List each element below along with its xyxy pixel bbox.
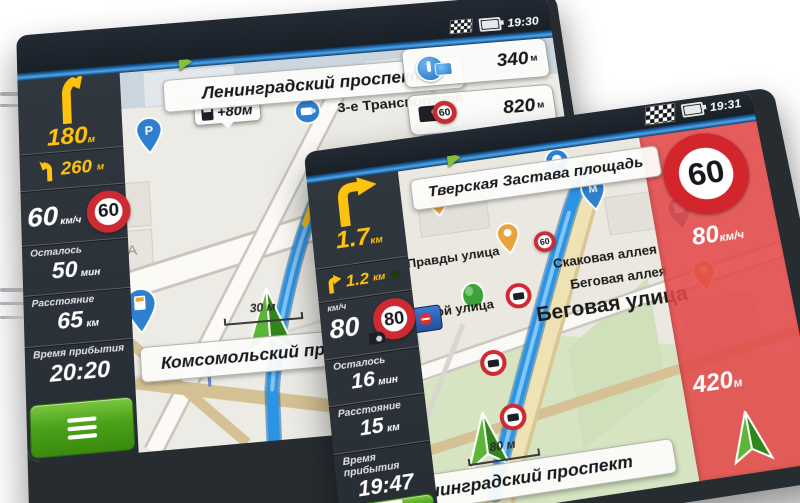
speed-unit-label: км/ч [327,301,347,313]
arrival-time-panel[interactable]: Время прибытия 20:20 [25,338,136,402]
clock: 19:30 [506,13,539,29]
speed-limit-sign: 60 [86,189,132,235]
speed-camera-icon [368,331,385,345]
maneuver-arrow-icon [46,71,92,126]
turn-right-arrow-icon [329,172,381,228]
current-speed-warning: 80км/ч [689,217,746,251]
camera-road-sign [506,284,531,308]
camera-badge-icon [434,62,453,76]
svg-text:P: P [144,124,153,138]
no-entry-lane-icon [419,312,432,325]
hamburger-icon [67,416,96,423]
battery-icon [680,102,704,118]
camera-road-sign [500,404,525,430]
current-speed: 80 [328,311,361,345]
route-finish-flag-icon [645,103,675,126]
navigator-device-2: М P [304,87,800,503]
route-finish-flag-icon [449,18,473,34]
sidebar-1: 180м 260 м 60 км/ч 60 [17,65,138,463]
compass-arrow-icon[interactable] [722,406,776,466]
camera-distance: 420м [690,365,744,400]
menu-button-1[interactable] [29,396,135,459]
next-turn-arrow-icon [325,273,343,294]
battery-icon [478,17,502,32]
warning-speed-limit-sign: 60 [657,128,756,220]
speed-panel[interactable]: 60 км/ч 60 [20,183,127,246]
camera-road-sign [481,350,506,375]
current-speed: 60 [27,201,59,234]
speed-unit: км/ч [60,215,81,227]
next-maneuver-arrow-icon [40,160,56,182]
navigation-screen-2: М P [304,90,800,503]
distance-remaining-panel[interactable]: Расстояние 65км [23,287,133,347]
clock: 19:31 [709,96,743,114]
traffic-light-icon [391,269,402,280]
traffic-camera-poi-icon[interactable] [294,98,321,124]
camera-limit-sign: 60 [431,100,458,125]
navitel-promo-canvas: { "colors": { "accent_yellow": "#ffc20e"… [0,0,800,503]
